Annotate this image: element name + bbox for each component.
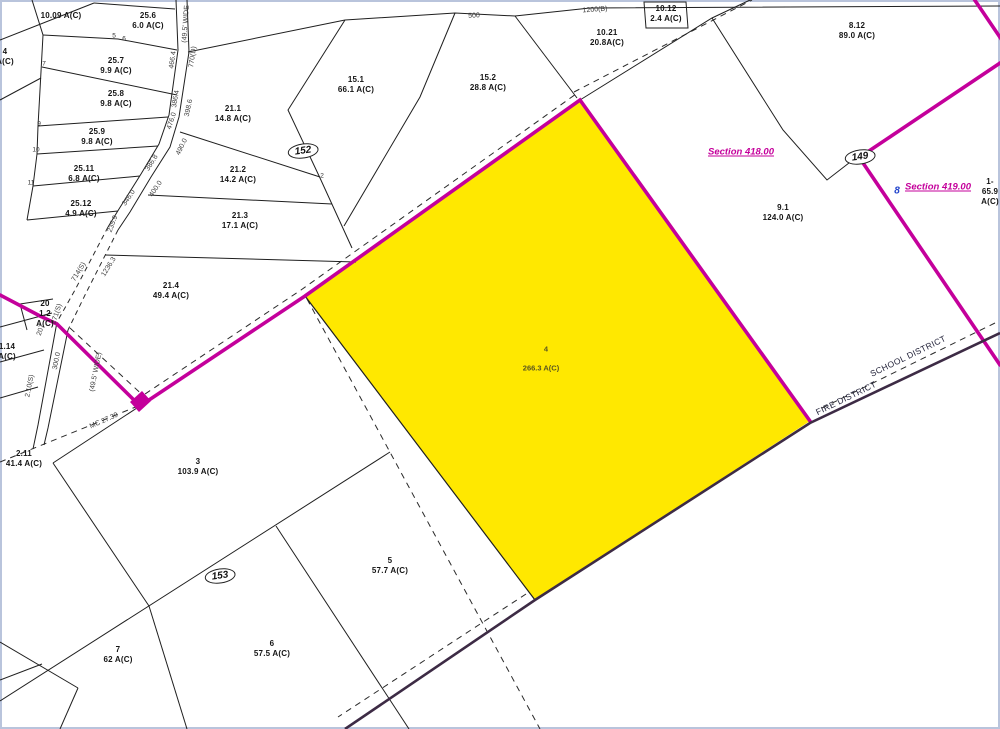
plat-map-canvas	[0, 0, 1000, 729]
magenta-marker-blob	[130, 391, 151, 412]
tax-parcel-map[interactable]: 4 266.3 A(C) 10.09 A(C)25.66.0 A(C)25.79…	[0, 0, 1000, 729]
highlighted-parcel-polygon[interactable]	[305, 100, 810, 600]
